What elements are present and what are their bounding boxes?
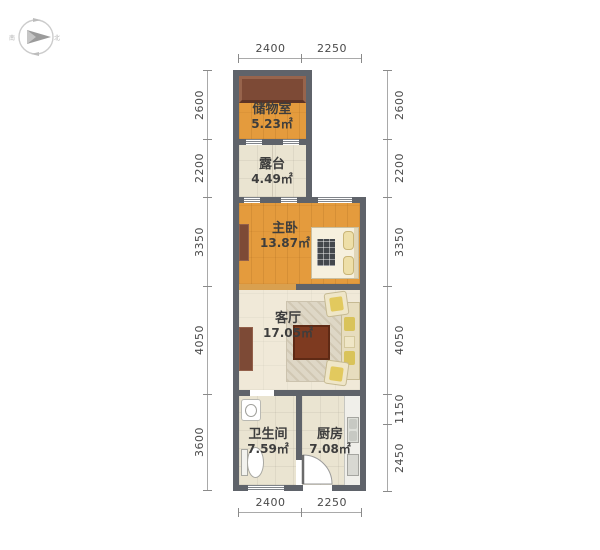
bedroom-name: 主卧 [243, 222, 327, 236]
wall-bedroom-living [296, 284, 366, 290]
terrace-area: 4.49㎡ [237, 172, 307, 186]
kitchen-label: 厨房 7.08㎡ [296, 428, 364, 456]
terrace-label: 露台 4.49㎡ [237, 158, 307, 186]
wall-storage-terrace [233, 139, 312, 145]
dim-tick [203, 139, 212, 140]
compass-north-label: 北 [54, 34, 60, 42]
dim-tick [383, 286, 392, 287]
kitchen-name: 厨房 [296, 428, 364, 442]
armchair-bottom-seat [329, 366, 344, 382]
dim-tick [383, 70, 392, 71]
dim-tick [361, 508, 362, 517]
bedroom-label: 主卧 13.87㎡ [243, 222, 327, 250]
entry-door-arc [296, 454, 336, 486]
living-name: 客厅 [246, 312, 330, 326]
sofa-cushion-top [344, 317, 355, 331]
dim-tick [203, 70, 212, 71]
dim-line-left [207, 70, 208, 490]
dim-bottom-2: 2250 [302, 496, 362, 509]
bedroom-window [318, 197, 352, 203]
bedroom-living-opening [239, 284, 296, 290]
dim-tick [383, 139, 392, 140]
dim-tick [383, 424, 392, 425]
dim-right-4: 4050 [393, 320, 405, 360]
dim-tick [203, 197, 212, 198]
terrace-bedroom-door-right [281, 197, 297, 203]
dim-right-5: 1150 [393, 389, 405, 429]
armchair-bottom [323, 360, 349, 387]
dim-line-right [387, 70, 388, 491]
dim-top-1: 2400 [239, 42, 302, 55]
dim-tick [383, 197, 392, 198]
dim-tick [301, 508, 302, 517]
bathroom-window [248, 485, 284, 491]
bed-pillow-top [343, 231, 354, 250]
terrace-name: 露台 [237, 158, 307, 172]
dim-tick [361, 54, 362, 63]
storage-area: 5.23㎡ [237, 117, 307, 131]
dim-tick [203, 286, 212, 287]
storage-cabinet [239, 76, 306, 103]
dim-left-2: 2200 [193, 148, 205, 188]
storage-label: 储物室 5.23㎡ [237, 103, 307, 131]
dim-tick [383, 491, 392, 492]
bathroom-door-opening [250, 390, 274, 396]
living-area: 17.05㎡ [246, 326, 330, 340]
dim-tick [383, 394, 392, 395]
dim-top-2: 2250 [302, 42, 362, 55]
dim-tick [238, 54, 239, 63]
living-label: 客厅 17.05㎡ [246, 312, 330, 340]
bathroom-label: 卫生间 7.59㎡ [233, 428, 303, 456]
dim-tick [238, 508, 239, 517]
dim-left-5: 3600 [193, 422, 205, 462]
dim-bottom-1: 2400 [239, 496, 302, 509]
armchair-top-seat [329, 296, 344, 312]
dim-right-3: 3350 [393, 222, 405, 262]
sofa-cushion-mid [344, 336, 355, 348]
floor-plan: 南 北 [0, 0, 600, 550]
bathroom-area: 7.59㎡ [233, 442, 303, 456]
washbasin [241, 399, 261, 421]
compass-south-label: 南 [9, 34, 15, 42]
dim-left-4: 4050 [193, 320, 205, 360]
washbasin-bowl [245, 404, 257, 417]
storage-name: 储物室 [237, 103, 307, 117]
storage-terrace-door-right [283, 139, 299, 145]
dim-right-1: 2600 [393, 85, 405, 125]
dim-left-3: 3350 [193, 222, 205, 262]
bed-headboard [354, 228, 358, 278]
dim-left-1: 2600 [193, 85, 205, 125]
dim-tick [203, 490, 212, 491]
kitchen-stove [347, 454, 359, 476]
bed-pillow-bottom [343, 256, 354, 275]
terrace-bedroom-door-left [244, 197, 260, 203]
dim-tick [203, 394, 212, 395]
storage-terrace-door-left [246, 139, 262, 145]
bathroom-name: 卫生间 [233, 428, 303, 442]
kitchen-area: 7.08㎡ [296, 442, 364, 456]
bedroom-area: 13.87㎡ [243, 236, 327, 250]
dim-right-6: 2450 [393, 438, 405, 478]
dim-tick [301, 54, 302, 63]
dim-right-2: 2200 [393, 148, 405, 188]
compass-icon: 南 北 [8, 12, 62, 62]
